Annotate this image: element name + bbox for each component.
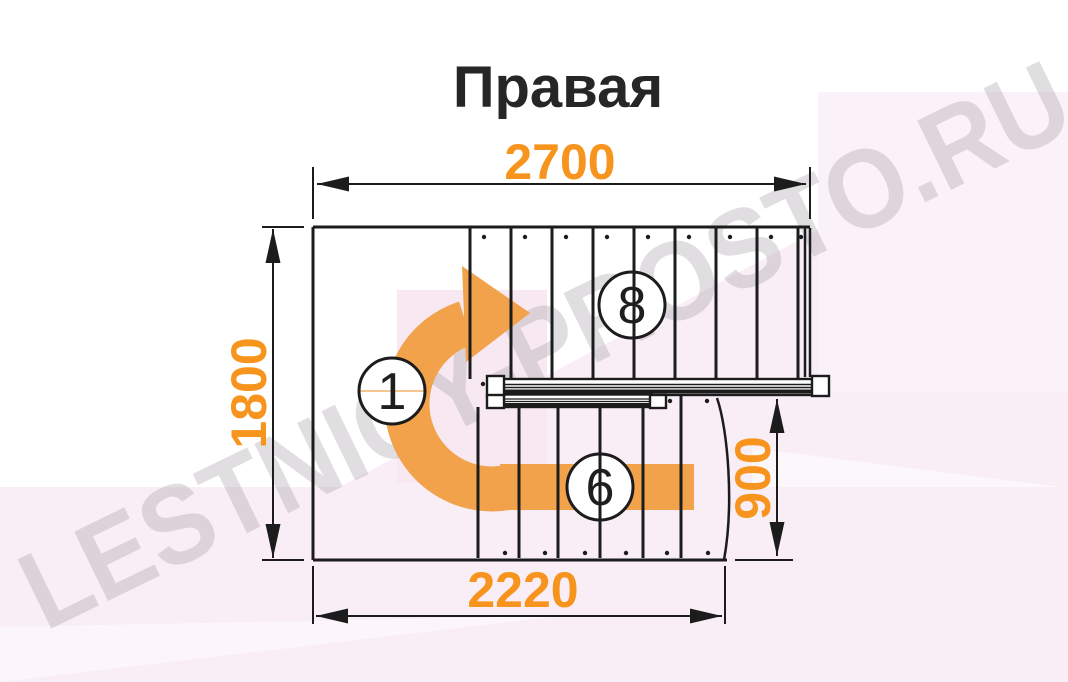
page-title: Правая — [48, 58, 1068, 119]
dimension-value-2220: 2220 — [467, 562, 578, 618]
stringer-cap — [487, 395, 504, 408]
step-number-1: 1 — [378, 363, 407, 421]
dimension-value-2700: 2700 — [504, 134, 615, 190]
staircase-plan-diagram: LESTNICY-PROSTO.RU — [0, 0, 1068, 682]
step-number-6: 6 — [586, 459, 615, 517]
stringer-cap — [650, 395, 666, 408]
stringer-cap — [487, 376, 504, 396]
step-number-8: 8 — [618, 277, 647, 335]
dimension-value-900: 900 — [725, 436, 781, 519]
dimension-value-1800: 1800 — [221, 337, 277, 448]
stringer-cap — [812, 376, 829, 396]
